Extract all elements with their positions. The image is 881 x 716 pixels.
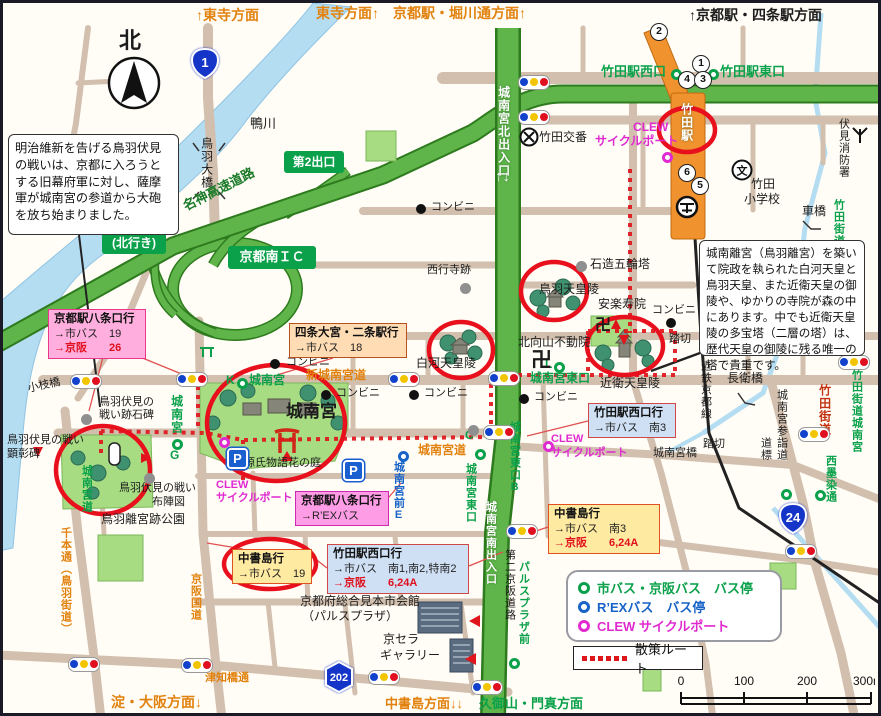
traffic-light-icon bbox=[518, 75, 550, 90]
legend-walking-route: 散策ルート bbox=[573, 646, 703, 670]
station-exit-number: 5 bbox=[691, 177, 709, 195]
cycle-port-icon bbox=[662, 152, 673, 163]
map-label: G bbox=[170, 449, 179, 462]
svg-text:24: 24 bbox=[786, 510, 801, 525]
map-label: 卍 bbox=[531, 350, 552, 372]
bus-stop-icon bbox=[237, 378, 248, 389]
scale-tick-label: 100 bbox=[734, 674, 754, 688]
map-label: 城南宮東口 bbox=[464, 463, 476, 523]
bus-route-box: 竹田駅西口行→市バス 南3 bbox=[588, 403, 676, 438]
bus-stop-icon bbox=[815, 490, 826, 501]
bus-route-box-row: →市バス 18 bbox=[295, 341, 401, 355]
bus-route-box: 中書島行→市バス 19 bbox=[232, 549, 312, 584]
route-shield: 1 bbox=[188, 46, 222, 85]
convenience-store-dot bbox=[270, 359, 280, 369]
map-label: 布陣図 bbox=[152, 497, 185, 509]
bus-stop-icon bbox=[509, 658, 520, 669]
bus-route-box-title: 竹田駅西口行 bbox=[333, 547, 463, 562]
station-exit-number: 3 bbox=[694, 71, 712, 89]
map-label: ギャラリー bbox=[380, 649, 440, 662]
road-exit-sign-label: 京都南ＩＣ bbox=[228, 249, 316, 265]
map-label: 淀・大阪方面↓ bbox=[111, 695, 202, 710]
traffic-light-icon bbox=[506, 524, 538, 539]
traffic-light-icon bbox=[181, 658, 213, 673]
map-label: 竹田駅 bbox=[680, 103, 693, 142]
scale-bar: 0100200300m bbox=[675, 671, 875, 711]
map-label: 源氏物語花の庭 bbox=[244, 458, 321, 470]
map-label: 白河天皇陵 bbox=[416, 357, 476, 370]
traffic-light-icon bbox=[785, 544, 817, 559]
police-box-icon bbox=[521, 129, 538, 146]
map-label: 鳥羽天皇陵 bbox=[539, 283, 599, 296]
landmark-dot bbox=[81, 414, 92, 425]
bus-route-box-row: →市バス 南1,南2,特南2 bbox=[333, 562, 463, 576]
walking-map-jonangu-takeda: 文 ↑東寺方面東寺方面↑ 京都駅・堀川通方面↑↑京都駅・四条駅方面淀・大阪方面↓… bbox=[0, 0, 881, 716]
route-shield: 24 bbox=[776, 501, 810, 540]
bus-route-box-row: →京阪 6,24A bbox=[333, 576, 463, 590]
traffic-light-icon bbox=[798, 427, 830, 442]
map-label: ↑東寺方面 bbox=[196, 8, 259, 23]
map-label: コンビニ bbox=[424, 388, 468, 400]
compass-icon bbox=[106, 55, 162, 111]
map-label: 北 bbox=[119, 29, 141, 52]
bus-route-box-title: 中書島行 bbox=[238, 552, 306, 567]
traffic-light-icon bbox=[176, 372, 208, 387]
school-icon: 文 bbox=[733, 161, 752, 180]
map-label: コンビニ bbox=[534, 392, 578, 404]
map-label: 新城南宮道 bbox=[306, 369, 366, 382]
map-label: 城南宮北出入口 bbox=[497, 86, 510, 177]
map-label: 城南宮道 bbox=[418, 444, 466, 457]
map-label: 中書島方面↓↓ bbox=[385, 697, 463, 711]
map-label: 踏切 bbox=[669, 334, 691, 346]
map-label: 京阪国道 bbox=[189, 573, 201, 621]
bus-route-box: 京都駅八条口行→R’EXバス bbox=[295, 491, 389, 526]
map-label: CLEW bbox=[216, 480, 248, 492]
map-label: 踏切 bbox=[703, 439, 725, 451]
fire-station-icon bbox=[853, 128, 867, 143]
bus-stop-icon bbox=[554, 362, 565, 373]
map-label: 城南宮前E bbox=[392, 461, 404, 522]
map-label: ↑京都駅・四条駅方面 bbox=[689, 8, 822, 23]
map-label: 千本通（鳥羽街道） bbox=[59, 527, 71, 635]
map-label: 近衛天皇陵 bbox=[600, 377, 660, 390]
convenience-store-dot bbox=[321, 390, 331, 400]
map-label: 第二京阪道路 bbox=[503, 549, 515, 621]
map-label: 西墨染通 bbox=[824, 455, 836, 503]
bus-route-box-title: 竹田駅西口行 bbox=[594, 406, 670, 421]
legend-stop-icon bbox=[578, 582, 590, 594]
legend-item: 市バス・京阪バス バス停 bbox=[578, 578, 770, 597]
map-label: コンビニ bbox=[286, 357, 330, 369]
map-label: 城南宮 bbox=[286, 403, 337, 421]
map-label: 小学校 bbox=[744, 193, 780, 206]
map-label: 鳥羽大橋 bbox=[200, 137, 213, 189]
map-label: コンビニ bbox=[336, 388, 380, 400]
convenience-store-dot bbox=[409, 390, 419, 400]
bus-route-box-row: →京阪 6,24A bbox=[554, 536, 654, 550]
map-label: パルスプラザ前 bbox=[517, 561, 529, 645]
bus-stop-icon bbox=[781, 489, 792, 500]
map-label: 石造五輪塔 bbox=[590, 258, 650, 271]
legend: 市バス・京阪バス バス停R’EXバス バス停CLEW サイクルポート bbox=[566, 570, 782, 642]
map-label: 久御山・門真方面 bbox=[479, 697, 583, 711]
parking-icon: P bbox=[227, 448, 248, 469]
monument-icon bbox=[109, 443, 120, 465]
info-box: 城南離宮（鳥羽離宮）を築いて院政を執られた白河天皇と鳥羽天皇、また近衛天皇の御陵… bbox=[699, 240, 865, 356]
map-label: 城南宮 bbox=[249, 374, 285, 387]
traffic-light-icon bbox=[68, 657, 100, 672]
map-label: 鳥羽伏見の戦い bbox=[7, 435, 84, 447]
bus-route-box-row: →京阪 26 bbox=[54, 341, 140, 355]
map-label: 戦い跡石碑 bbox=[99, 410, 154, 422]
cycle-port-icon bbox=[219, 437, 230, 448]
map-label: CLEW bbox=[633, 121, 668, 134]
traffic-light-icon bbox=[488, 371, 520, 386]
map-label: 竹田交番 bbox=[539, 131, 587, 144]
bus-route-box-row: →R’EXバス bbox=[301, 509, 383, 523]
route-dots-sample bbox=[582, 656, 627, 661]
map-label: 城南宮橋 bbox=[653, 448, 697, 460]
legend-item-label: R’EXバス バス停 bbox=[597, 597, 705, 616]
road-exit-sign-label: (北行き) bbox=[102, 236, 166, 251]
map-label: 伏見消防署 bbox=[837, 118, 849, 178]
map-label: 鳥羽伏見の戦い bbox=[119, 483, 196, 495]
rex-bus-stop-icon bbox=[398, 451, 409, 462]
traffic-light-icon bbox=[368, 670, 400, 685]
map-label: CLEW bbox=[551, 434, 583, 446]
map-label: コンビニ bbox=[431, 202, 475, 214]
map-label: 城南宮南出入口 bbox=[484, 501, 496, 585]
bus-route-box-title: 京都駅八条口行 bbox=[301, 494, 383, 509]
map-label: ↑↓ bbox=[495, 169, 510, 185]
station-exit-number: 2 bbox=[650, 23, 668, 41]
svg-text:文: 文 bbox=[737, 164, 749, 178]
map-label: 津知橋通 bbox=[205, 673, 249, 685]
scale-tick-label: 0 bbox=[678, 674, 685, 688]
bus-route-box-title: 京都駅八条口行 bbox=[54, 312, 140, 327]
shrine-symbol-icon bbox=[200, 348, 214, 357]
svg-text:1: 1 bbox=[201, 55, 208, 70]
map-label: 鳥羽伏見の bbox=[99, 397, 154, 409]
map-label: 竹田街道城南宮 bbox=[850, 369, 862, 453]
map-label: （パルスプラザ） bbox=[302, 610, 398, 623]
map-label: 東寺方面↑ 京都駅・堀川通方面↑ bbox=[316, 6, 526, 21]
map-label: 卍 bbox=[595, 318, 611, 335]
legend-item-label: 市バス・京阪バス バス停 bbox=[597, 578, 753, 597]
map-label: 城南宮 bbox=[170, 395, 183, 434]
bus-route-box-row: →市バス 南3 bbox=[554, 522, 654, 536]
map-label: サイクルポート bbox=[216, 493, 292, 505]
bus-route-box: 四条大宮・二条駅行→市バス 18 bbox=[289, 323, 407, 358]
map-label: K bbox=[226, 374, 235, 387]
map-label: 城南宮参詣道 bbox=[775, 389, 787, 461]
bus-route-box-row: →市バス 南3 bbox=[594, 421, 670, 435]
bus-route-box-row: →市バス 19 bbox=[238, 567, 306, 581]
cycle-port-icon bbox=[543, 441, 554, 452]
route-shield: 202 bbox=[322, 660, 356, 699]
map-label: 鴨川 bbox=[250, 117, 276, 131]
bus-stop-icon bbox=[475, 449, 486, 460]
map-label: 長衛橋 bbox=[727, 372, 763, 385]
scale-tick-label: 200 bbox=[797, 674, 817, 688]
svg-text:202: 202 bbox=[330, 672, 348, 684]
map-label: サイクルポート bbox=[595, 135, 678, 148]
landmark-dot bbox=[576, 261, 587, 272]
map-label: 顕彰碑 bbox=[7, 449, 40, 461]
legend-item: CLEW サイクルポート bbox=[578, 616, 770, 635]
bus-route-box: 竹田駅西口行→市バス 南1,南2,特南2→京阪 6,24A bbox=[327, 544, 469, 594]
map-label: 安楽寿院 bbox=[598, 298, 646, 311]
bus-route-box: 中書島行→市バス 南3→京阪 6,24A bbox=[548, 504, 660, 554]
map-label: 竹田 bbox=[751, 178, 775, 191]
convenience-store-dot bbox=[519, 394, 529, 404]
bus-route-box: 京都駅八条口行→市バス 19→京阪 26 bbox=[48, 309, 146, 359]
map-label: 城南宮道 bbox=[80, 465, 92, 513]
parking-icon: P bbox=[343, 460, 364, 481]
landmark-dot bbox=[460, 283, 471, 294]
map-label: 京都府総合見本市会館 bbox=[300, 595, 420, 608]
scale-tick-label: 300m bbox=[853, 674, 875, 688]
bus-route-box-title: 四条大宮・二条駅行 bbox=[295, 326, 401, 341]
map-label: サイクルポート bbox=[551, 448, 627, 460]
map-label: 城南宮東口 bbox=[530, 372, 590, 385]
landmark-dot bbox=[468, 425, 479, 436]
traffic-light-icon bbox=[70, 374, 102, 389]
legend-stop-icon bbox=[578, 620, 590, 632]
map-label: 車橋 bbox=[802, 205, 826, 218]
bus-stop-icon bbox=[172, 439, 183, 450]
traffic-light-icon bbox=[518, 110, 550, 125]
road-exit-sign: 第2出口 bbox=[284, 151, 344, 173]
legend-stop-icon bbox=[578, 601, 590, 613]
road-exit-sign-label: 第2出口 bbox=[284, 155, 344, 170]
map-label: 京セラ bbox=[383, 633, 419, 646]
subway-station-icon bbox=[677, 197, 697, 217]
traffic-light-icon bbox=[483, 425, 515, 440]
map-label: 竹田駅東口 bbox=[720, 65, 785, 79]
map-label: コンビニ bbox=[652, 305, 696, 317]
map-label: 竹田駅西口 bbox=[601, 65, 666, 79]
convenience-store-dot bbox=[416, 204, 426, 214]
landmark-dot bbox=[144, 473, 155, 484]
map-label: 西行寺跡 bbox=[427, 265, 471, 277]
bus-route-box-row: →市バス 19 bbox=[54, 327, 140, 341]
bus-route-box-title: 中書島行 bbox=[554, 507, 654, 522]
map-label: 北向山不動院 bbox=[518, 336, 590, 349]
map-label: 道標 bbox=[759, 437, 771, 461]
map-label: 鳥羽離宮跡公園 bbox=[101, 513, 185, 526]
road-exit-sign: 京都南ＩＣ bbox=[228, 246, 316, 269]
traffic-light-icon bbox=[471, 680, 503, 695]
info-box: 明治維新を告げる鳥羽伏見の戦いは、京都に入ろうとする旧幕府軍に対し、薩摩軍が城南… bbox=[8, 134, 179, 235]
legend-item: R’EXバス バス停 bbox=[578, 597, 770, 616]
convenience-store-dot bbox=[666, 318, 676, 328]
legend-item-label: CLEW サイクルポート bbox=[597, 616, 729, 635]
traffic-light-icon bbox=[388, 372, 420, 387]
